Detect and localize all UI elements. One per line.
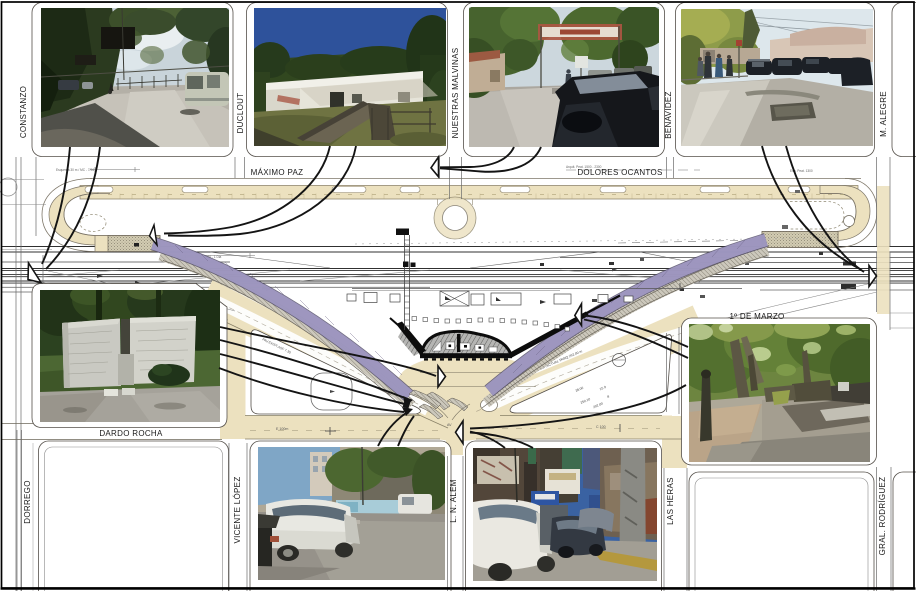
svg-text:1º DE MARZO: 1º DE MARZO xyxy=(729,312,784,321)
svg-text:DUCLOUT: DUCLOUT xyxy=(236,93,245,134)
svg-text:MÁXIMO PAZ: MÁXIMO PAZ xyxy=(251,168,304,177)
svg-text:LAS HERAS: LAS HERAS xyxy=(666,477,675,525)
svg-text:M. ALEGRE: M. ALEGRE xyxy=(879,91,888,137)
svg-text:GRAL. RODRÍGUEZ: GRAL. RODRÍGUEZ xyxy=(878,477,887,556)
svg-text:C 100: C 100 xyxy=(596,425,606,429)
svg-text:DORREGO: DORREGO xyxy=(23,480,32,523)
svg-text:Esquema 30 m / MC - 7/96: Esquema 30 m / MC - 7/96 xyxy=(56,168,94,172)
svg-text:CONSTANZO: CONSTANZO xyxy=(19,86,28,138)
svg-text:DARDO ROCHA: DARDO ROCHA xyxy=(99,429,163,438)
svg-text:DOLORES OCANTOS: DOLORES OCANTOS xyxy=(577,168,662,177)
svg-text:AV: AV xyxy=(447,423,452,427)
svg-text:E 100m: E 100m xyxy=(276,427,288,431)
svg-text:NUESTRAS MALVINAS: NUESTRAS MALVINAS xyxy=(451,48,460,139)
svg-text:L. N. ALEM: L. N. ALEM xyxy=(449,479,458,522)
svg-text:VICENTE LÓPEZ: VICENTE LÓPEZ xyxy=(233,476,242,543)
svg-text:BENAVIDEZ: BENAVIDEZ xyxy=(664,91,673,138)
